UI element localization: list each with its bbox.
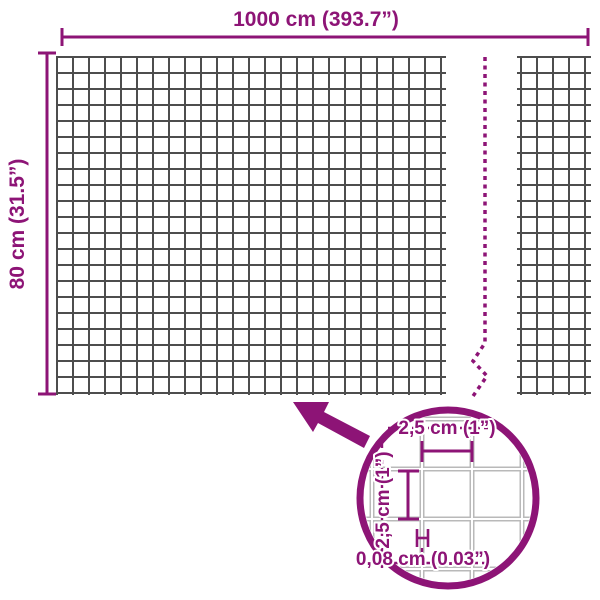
width-dimension: 1000 cm (393.7”): [62, 8, 588, 46]
wire-thickness-label: 0,08 cm (0.03”): [356, 549, 490, 570]
fence-mesh-right-section: [517, 56, 591, 395]
zoom-arrow-icon: [293, 402, 370, 448]
mesh-break-dashed-line: [471, 57, 487, 399]
height-dimension-label: 80 cm (31.5”): [6, 159, 29, 290]
dimension-diagram-canvas: 1000 cm (393.7”) 80 cm (31.5”) 2,5 cm (1…: [0, 0, 600, 600]
detail-height-label: 2,5 cm (1”): [373, 451, 394, 548]
width-dimension-label: 1000 cm (393.7”): [233, 8, 399, 31]
detail-width-label: 2,5 cm (1”): [398, 418, 495, 439]
height-dimension: 80 cm (31.5”): [6, 53, 56, 394]
product-dimension-diagram: 1000 cm (393.7”) 80 cm (31.5”) 2,5 cm (1…: [0, 0, 600, 600]
fence-mesh-left-section: [56, 56, 446, 395]
